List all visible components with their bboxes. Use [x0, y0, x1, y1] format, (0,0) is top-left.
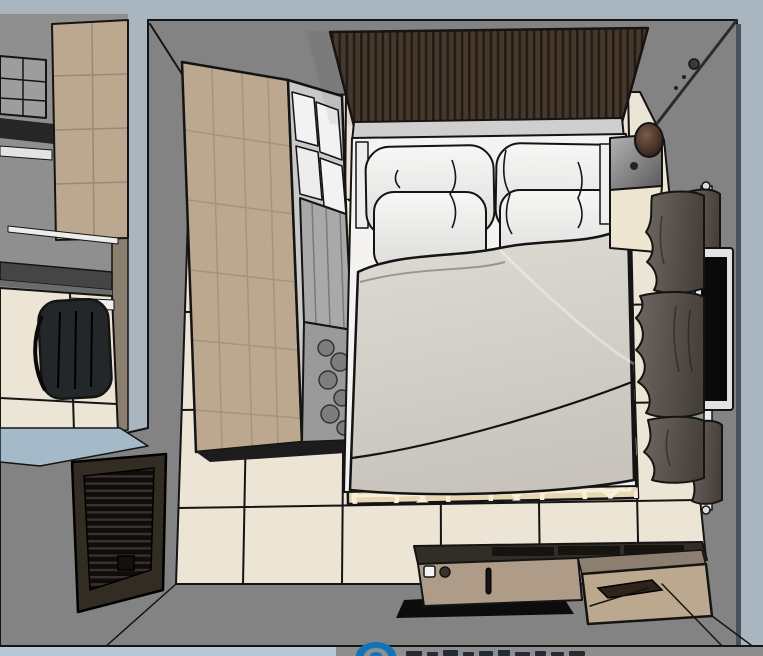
watermark-letter-fragment: [427, 652, 438, 656]
office-chair: [35, 298, 112, 400]
wardrobe-top: [182, 62, 302, 452]
shelf-compartment: [292, 92, 318, 146]
watermark-letter-fragment: [515, 652, 530, 656]
watermark-letter-fragment: [443, 650, 458, 656]
bottom-left-band: [0, 647, 336, 656]
duvet: [350, 226, 634, 494]
rod-finial: [702, 506, 710, 514]
background-right-strip: [741, 24, 763, 646]
console-handle-groove: [486, 568, 491, 594]
shelf-compartment: [296, 146, 322, 200]
watermark-letter-fragment: [535, 651, 546, 656]
watermark-letter-fragment: [463, 652, 474, 656]
cable-tick: [674, 86, 678, 90]
watermark-letter-fragment: [551, 652, 564, 656]
render-viewport: [0, 0, 763, 656]
cable-tick: [682, 75, 686, 79]
louver-slats: [84, 468, 154, 590]
watermark-letter-fragment: [569, 651, 585, 656]
duvet-body: [350, 226, 634, 494]
adjacent-room: [0, 14, 148, 466]
right-wall-edge: [736, 24, 741, 646]
slat-panel: [330, 28, 648, 126]
nightstand-knob: [630, 162, 638, 170]
scene-canvas: [0, 0, 763, 656]
console-top-door: [492, 547, 554, 556]
watermark-letter-fragment: [498, 650, 510, 656]
drawer-unit: [578, 550, 712, 624]
watermark-letter-fragment: [479, 651, 493, 656]
console-knob: [440, 567, 450, 577]
slatted-headboard-panel: [306, 28, 648, 142]
console-switch: [424, 566, 435, 577]
nightstand-side-band: [600, 144, 610, 224]
louver-handle: [118, 556, 134, 570]
console-top-door: [558, 546, 620, 555]
bottom-right-band: [336, 647, 763, 656]
cable-knob: [689, 59, 699, 69]
watermark-letter-fragment: [406, 651, 422, 656]
lamp-shade-sphere: [635, 123, 663, 157]
bed: [344, 134, 636, 494]
console-front: [418, 558, 582, 606]
